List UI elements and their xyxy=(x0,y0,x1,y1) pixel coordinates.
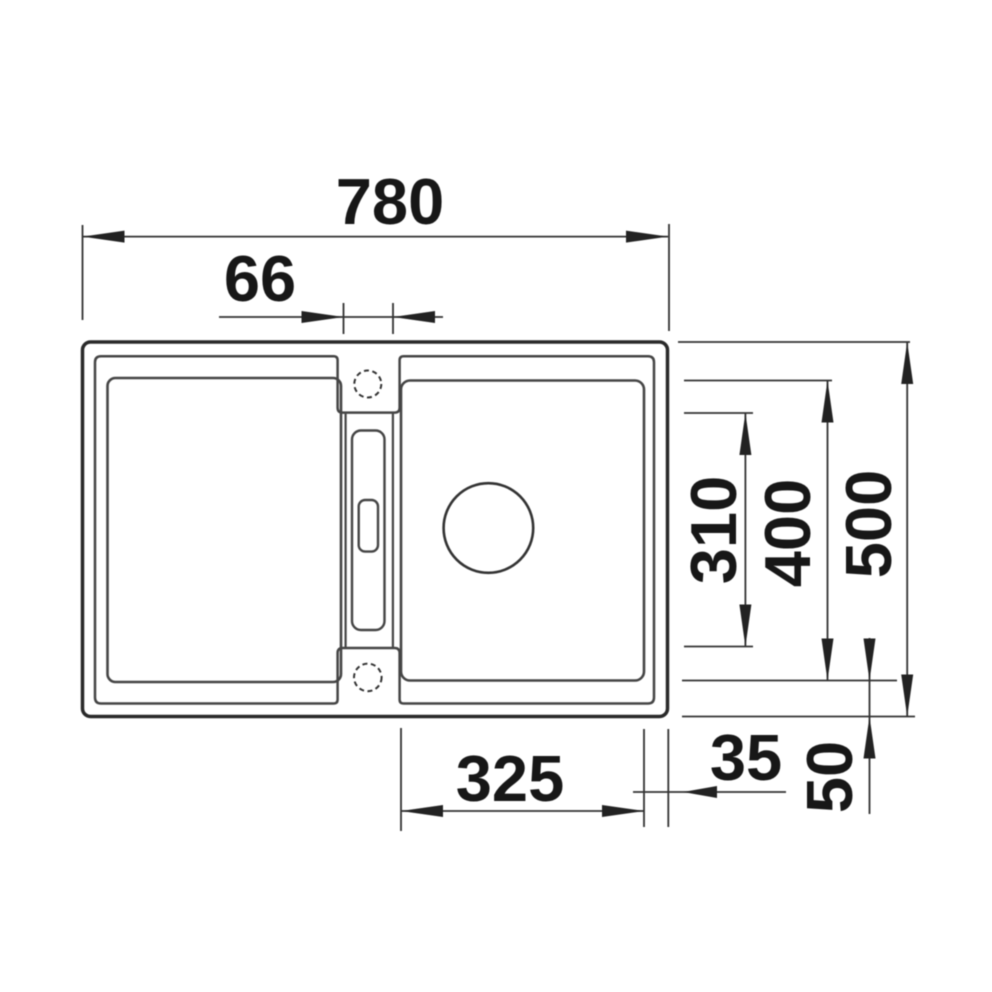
svg-text:66: 66 xyxy=(224,242,296,315)
svg-text:50: 50 xyxy=(793,741,866,813)
svg-text:500: 500 xyxy=(832,470,905,578)
svg-text:325: 325 xyxy=(456,742,564,815)
svg-text:35: 35 xyxy=(710,721,782,794)
svg-text:780: 780 xyxy=(336,165,444,238)
svg-text:400: 400 xyxy=(751,479,824,587)
svg-text:310: 310 xyxy=(677,476,750,584)
